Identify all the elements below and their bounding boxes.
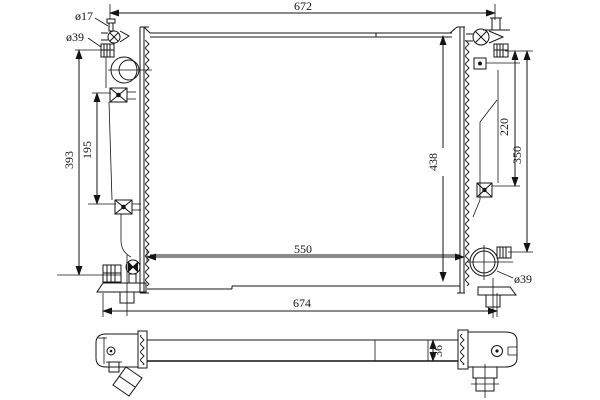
port-labels: ø17 ø39 [66, 9, 108, 47]
plate-fins-right [460, 334, 465, 365]
right-mounting-bracket [477, 183, 492, 197]
dim-label-550: 550 [294, 242, 312, 256]
drain-plug [103, 260, 140, 283]
dim-label-filler-dia: ø17 [75, 9, 93, 23]
radiator-body [97, 27, 516, 318]
dim-label-36: 36 [431, 345, 445, 357]
dim-label-672: 672 [294, 0, 312, 13]
right-top-fittings [466, 18, 520, 217]
dim-core-width: 550 [147, 242, 464, 263]
front-view: 672 [57, 0, 533, 318]
dim-label-inlet-dia: ø39 [66, 30, 84, 44]
dim-label-393: 393 [62, 151, 76, 169]
outlet-port: ø39 [467, 245, 532, 286]
dim-left-height: 393 [57, 50, 121, 275]
dim-width-top: 672 [110, 0, 495, 20]
dim-label-350: 350 [510, 146, 524, 164]
dim-label-438: 438 [426, 153, 440, 171]
dim-label-outlet-dia: ø39 [514, 272, 532, 286]
dim-label-220: 220 [497, 118, 511, 136]
plate-fins-left [140, 335, 145, 365]
dim-core-depth: 36 [431, 340, 445, 361]
dim-width-bottom: 674 [103, 293, 497, 317]
dim-label-674: 674 [293, 296, 311, 310]
bottom-profile-view: 36 [96, 330, 517, 398]
dim-overall-height: 438 [426, 36, 443, 281]
core-fins-right [465, 40, 470, 286]
core-fins-left [145, 40, 150, 286]
drawing-sheet: 672 [0, 0, 600, 400]
radiator-technical-drawing: 672 [0, 0, 600, 400]
left-mounting-brackets [110, 88, 141, 214]
dim-label-195: 195 [80, 141, 94, 159]
